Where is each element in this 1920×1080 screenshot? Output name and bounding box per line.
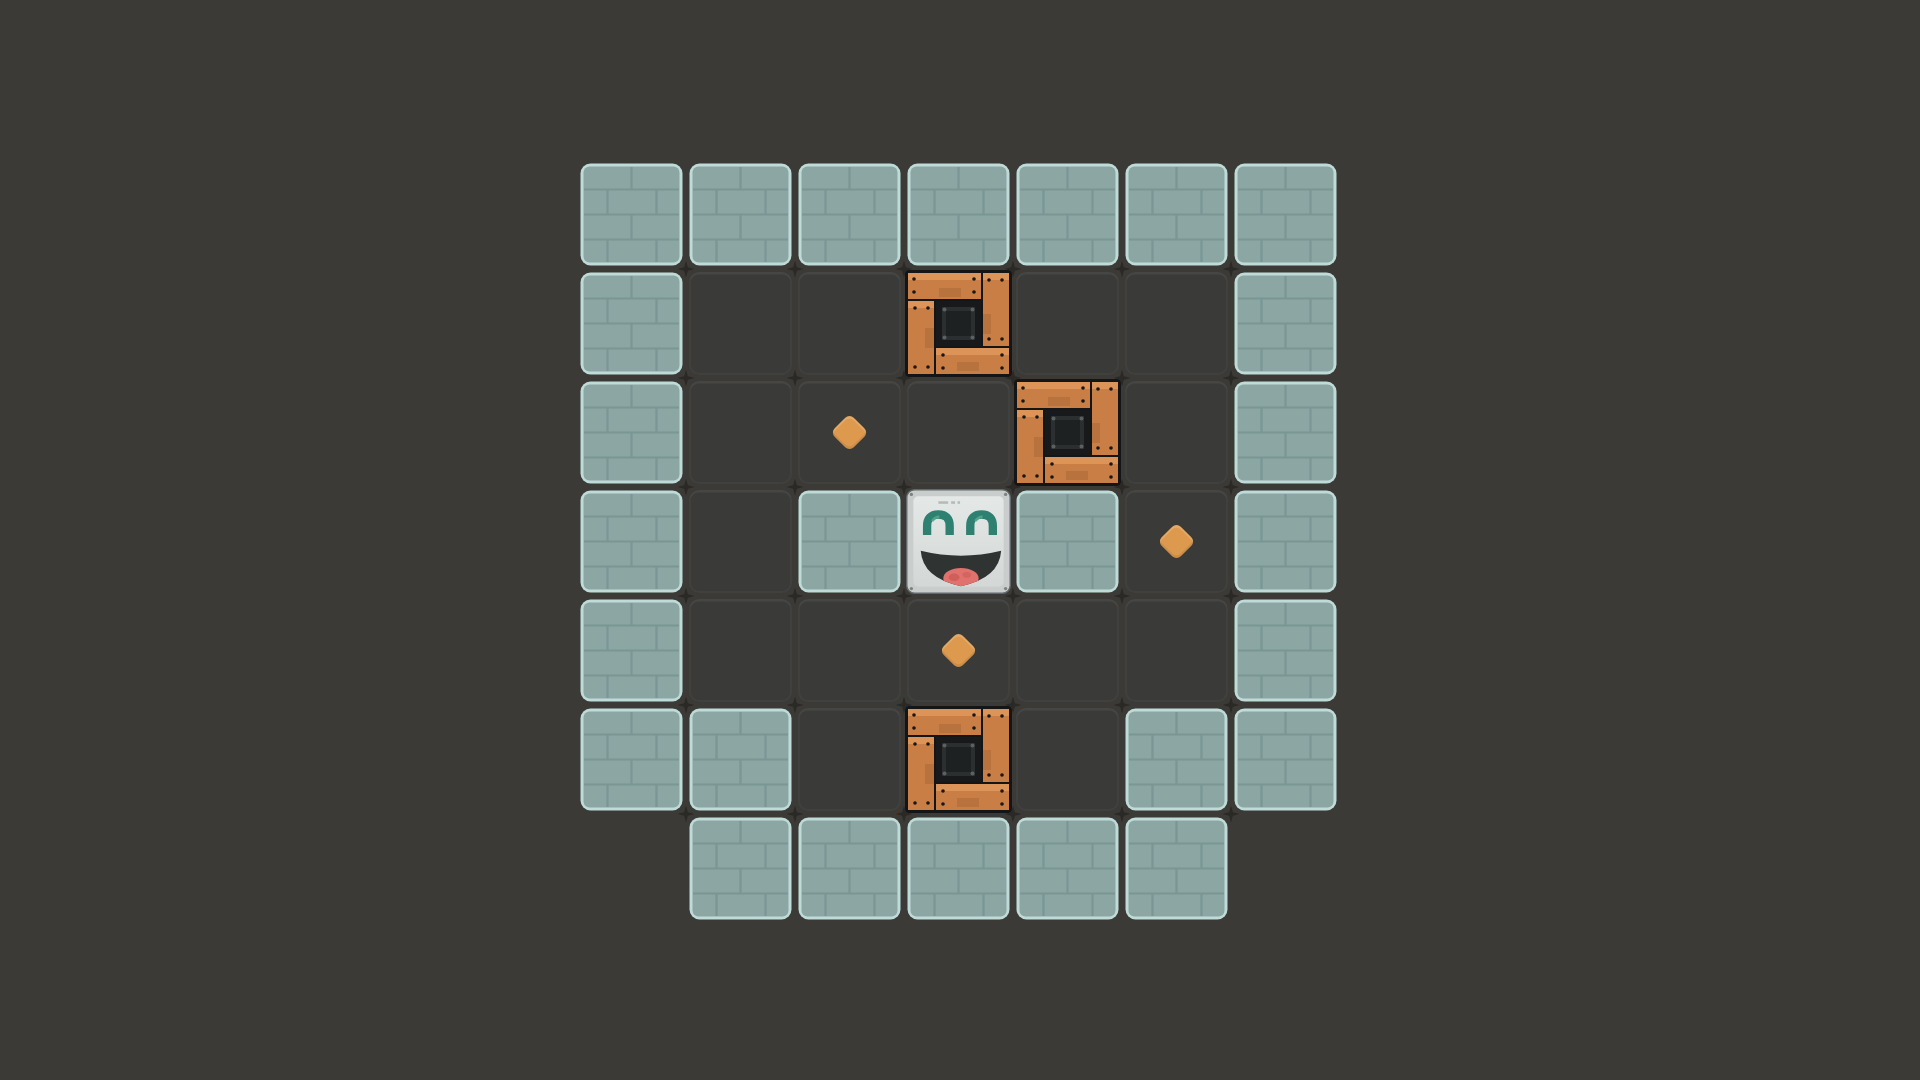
floor-graphic [907,381,1010,484]
wall-tile [1013,160,1122,269]
gem-cell [795,378,904,487]
wall-brick-graphic [1234,272,1337,375]
floor-tile [686,378,795,487]
wall-tile [1231,487,1340,596]
wall-tile [1231,596,1340,705]
player-face-graphic [906,489,1011,594]
crate-graphic [905,706,1012,813]
wall-brick-graphic [580,381,683,484]
wall-brick-graphic [580,272,683,375]
wall-brick-graphic [1016,817,1119,920]
floor-graphic [1016,708,1119,811]
wall-tile [795,160,904,269]
wall-tile [1122,814,1231,923]
floor-tile [795,596,904,705]
wall-tile [904,814,1013,923]
floor-tile [1013,269,1122,378]
floor-graphic [689,272,792,375]
crate-cell [1013,378,1122,487]
floor-graphic [1125,599,1228,702]
crate-graphic [1014,379,1121,486]
wall-brick-graphic [1125,708,1228,811]
floor-tile [795,269,904,378]
wall-brick-graphic [1016,163,1119,266]
floor-tile [686,487,795,596]
wall-brick-graphic [689,163,792,266]
floor-graphic [798,599,901,702]
floor-graphic [1016,272,1119,375]
wall-brick-graphic [580,163,683,266]
wall-brick-graphic [1125,163,1228,266]
wall-brick-graphic [580,599,683,702]
wall-tile [795,487,904,596]
floor-graphic [798,272,901,375]
wall-brick-graphic [1234,381,1337,484]
wall-brick-graphic [798,490,901,593]
wall-brick-graphic [907,163,1010,266]
floor-tile [1013,705,1122,814]
wall-tile [1122,705,1231,814]
floor-tile [795,705,904,814]
floor-graphic [1125,272,1228,375]
floor-tile [904,378,1013,487]
wall-brick-graphic [907,817,1010,920]
floor-tile [686,269,795,378]
wall-brick-graphic [1016,490,1119,593]
wall-brick-graphic [798,817,901,920]
wall-tile [1231,160,1340,269]
wall-brick-graphic [798,163,901,266]
gem-cell [1122,487,1231,596]
wall-tile [686,705,795,814]
wall-tile [1231,705,1340,814]
wall-brick-graphic [689,708,792,811]
wall-tile [1122,160,1231,269]
floor-graphic [689,599,792,702]
wall-tile [577,378,686,487]
wall-tile [577,269,686,378]
wall-tile [577,487,686,596]
floor-graphic [689,381,792,484]
wall-tile [577,160,686,269]
wall-brick-graphic [580,490,683,593]
wall-tile [1013,814,1122,923]
wall-tile [1231,269,1340,378]
crate-graphic [905,270,1012,377]
wall-tile [686,814,795,923]
wall-brick-graphic [1234,708,1337,811]
wall-tile [577,705,686,814]
crate-cell [904,705,1013,814]
wall-tile [577,596,686,705]
wall-brick-graphic [580,708,683,811]
wall-tile [795,814,904,923]
floor-graphic [798,708,901,811]
wall-tile [1231,378,1340,487]
player-cell [904,487,1013,596]
wall-tile [686,160,795,269]
wall-brick-graphic [1234,163,1337,266]
wall-tile [1013,487,1122,596]
wall-brick-graphic [1125,817,1228,920]
floor-tile [1122,596,1231,705]
floor-tile [1122,378,1231,487]
game-screen: { "scene": { "description": "sokoban-sty… [0,0,1920,1080]
wall-brick-graphic [1234,490,1337,593]
floor-tile [686,596,795,705]
floor-graphic [689,490,792,593]
floor-graphic [1125,381,1228,484]
floor-graphic [1016,599,1119,702]
gem-cell [904,596,1013,705]
crate-cell [904,269,1013,378]
wall-tile [904,160,1013,269]
game-board[interactable] [577,160,1340,923]
floor-tile [1013,596,1122,705]
wall-brick-graphic [689,817,792,920]
wall-brick-graphic [1234,599,1337,702]
floor-tile [1122,269,1231,378]
